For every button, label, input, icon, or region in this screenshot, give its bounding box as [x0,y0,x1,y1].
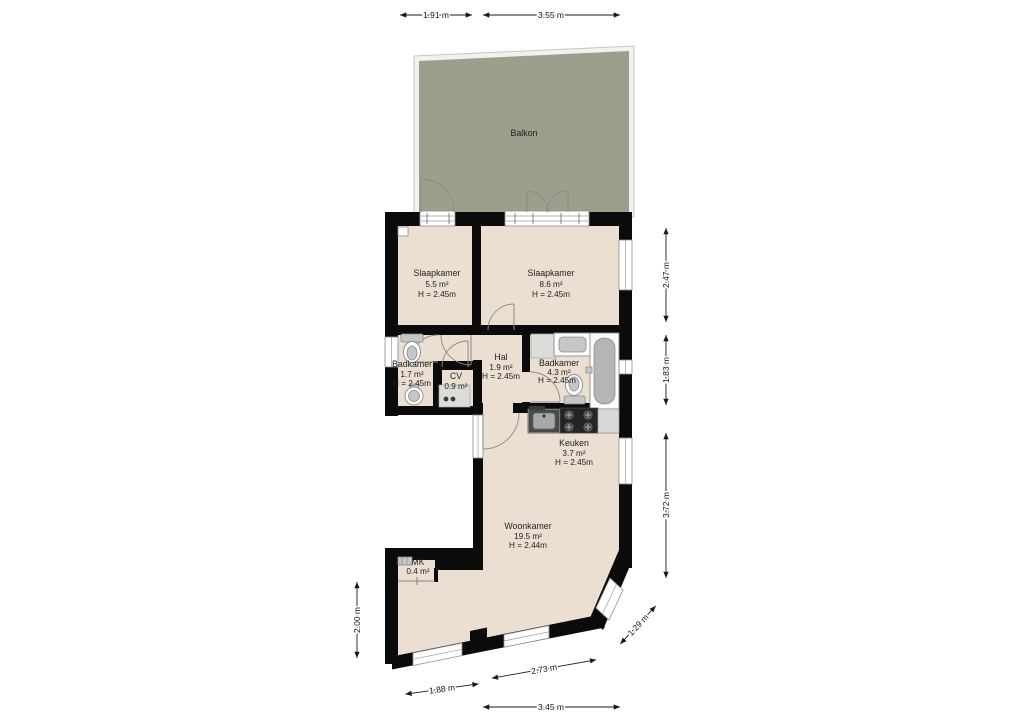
svg-text:1.7 m²: 1.7 m² [400,370,423,379]
window [619,240,632,290]
svg-text:H = 2.45m: H = 2.45m [532,290,570,299]
svg-text:Keuken: Keuken [559,438,589,448]
svg-text:Slaapkamer: Slaapkamer [528,268,575,278]
room-label-balkon: Balkon [511,128,538,138]
svg-text:1.88 m: 1.88 m [428,682,455,696]
svg-text:H = 2.45m: H = 2.45m [393,379,431,388]
svg-text:Slaapkamer: Slaapkamer [414,268,461,278]
dimension-top-2: 3.55 m [483,10,620,20]
dimension-bottom-2: 2.73 m [491,655,597,683]
svg-text:Badkamer: Badkamer [392,359,432,369]
svg-text:5.5 m²: 5.5 m² [425,280,448,289]
dimension-bottom-1: 1.88 m [405,679,480,699]
svg-text:1.91 m: 1.91 m [423,10,449,20]
dimension-bottom-3: 3.45 m [483,702,620,712]
kitchen-counter [528,406,619,433]
window [505,211,589,226]
svg-text:H = 2.45m: H = 2.45m [538,376,576,385]
svg-text:2.73 m: 2.73 m [530,662,557,676]
dimension-diagonal: 1.29 m [617,603,660,648]
svg-text:H = 2.44m: H = 2.44m [509,541,547,550]
svg-text:1.9 m²: 1.9 m² [489,363,512,372]
dimension-right-3: 3.72 m [661,433,671,578]
fridge-icon [598,409,619,433]
bathtub-icon [586,333,619,409]
counter-icon [531,333,591,358]
svg-text:H = 2.45m: H = 2.45m [555,458,593,467]
svg-text:0.4 m²: 0.4 m² [406,567,429,576]
kitchen-sink-icon [529,410,559,432]
stove-icon [560,408,598,433]
dimension-left: 2.00 m [352,582,362,658]
dimension-right-2: 1.83 m [661,335,671,405]
dimension-top-1: 1.91 m [400,10,472,20]
svg-text:3.55 m: 3.55 m [538,10,564,20]
svg-text:2.47 m: 2.47 m [661,262,671,288]
floorplan-svg: Balkon Slaapkamer 5.5 m² H = 2.45m Slaap… [0,0,1024,724]
svg-text:0.9 m²: 0.9 m² [444,382,467,391]
svg-text:H = 2.45m: H = 2.45m [482,372,520,381]
svg-text:3.45 m: 3.45 m [538,702,564,712]
mk-shelf-icon [398,557,412,565]
svg-text:Hal: Hal [494,352,507,362]
window [619,360,632,374]
svg-text:19.5 m²: 19.5 m² [514,532,542,541]
svg-text:MK: MK [411,557,424,567]
svg-text:CV: CV [450,371,462,381]
svg-text:2.00 m: 2.00 m [352,607,362,633]
svg-text:1.29 m: 1.29 m [625,612,650,638]
window [473,415,483,458]
svg-text:3.72 m: 3.72 m [661,492,671,518]
wall-niche [398,227,408,236]
dimension-right-1: 2.47 m [661,228,671,322]
window [420,211,455,226]
svg-text:1.83 m: 1.83 m [661,357,671,383]
svg-text:8.6 m²: 8.6 m² [539,280,562,289]
svg-text:3.7 m²: 3.7 m² [562,449,585,458]
svg-text:H = 2.45m: H = 2.45m [418,290,456,299]
svg-text:Woonkamer: Woonkamer [504,521,551,531]
svg-text:Badkamer: Badkamer [539,358,579,368]
window [619,438,632,484]
